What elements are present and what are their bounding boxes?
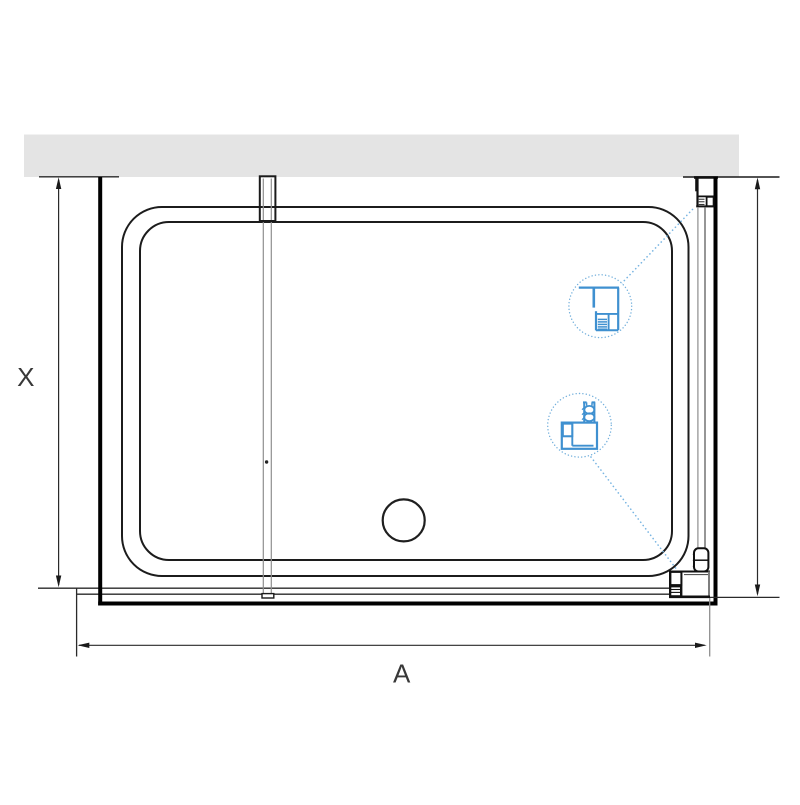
svg-text:A: A (393, 659, 411, 689)
svg-text:X: X (17, 362, 34, 392)
